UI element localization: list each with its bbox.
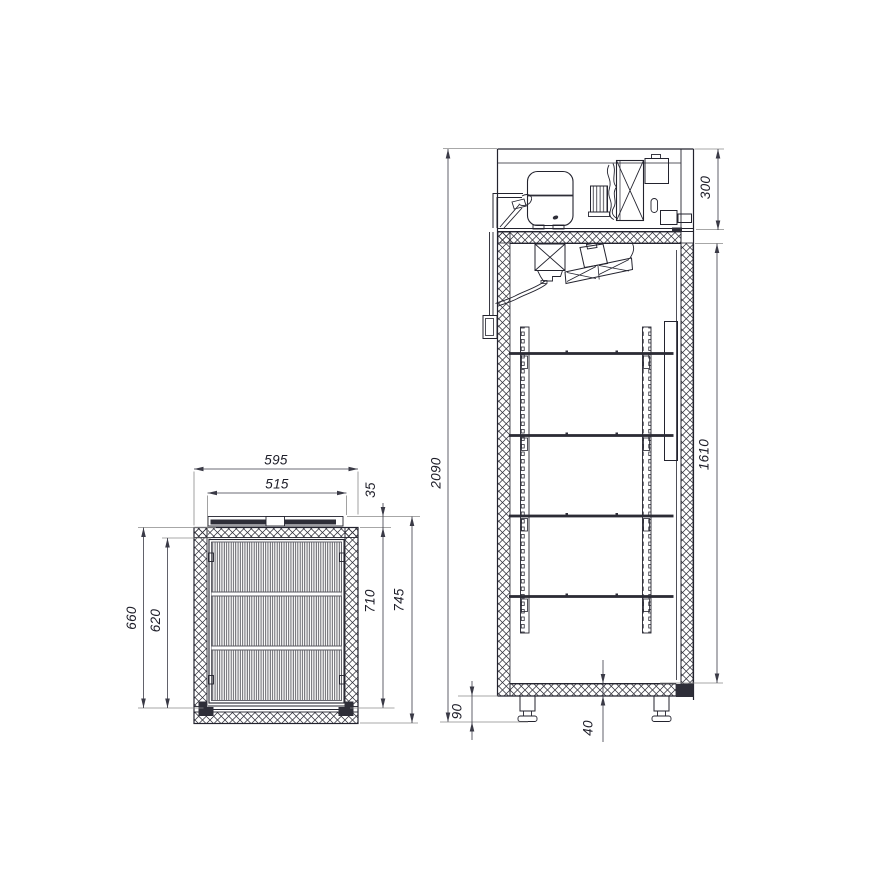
evaporator-unit: [535, 244, 565, 284]
back-wall-insulation: [194, 528, 358, 538]
dim-bottom-insulation: 40: [581, 660, 606, 742]
dim-label-depth-a: 660: [124, 606, 139, 630]
dim-label-outer-width: 595: [264, 453, 288, 468]
dim-label-interior-height: 1610: [697, 439, 712, 470]
rear-leg: [652, 696, 671, 722]
compressor: [528, 172, 574, 230]
interior-grid: [209, 540, 344, 704]
drawing-canvas: 595 515 35 710 745: [0, 0, 878, 878]
condenser-coil: [617, 161, 644, 221]
dim-label-body-depth: 710: [363, 589, 378, 613]
electrical-box: [645, 155, 692, 232]
shelf-rail-right: [643, 327, 652, 633]
dim-overall-depth: 745: [360, 517, 418, 724]
door-liner-bar: [208, 706, 350, 710]
side-wall-insulation-left: [194, 528, 207, 707]
gasket-corner-left: [199, 702, 214, 717]
shelf-rail-left: [521, 327, 530, 633]
dim-overall-height: 2090: [429, 149, 498, 723]
deck-lines: [498, 229, 695, 232]
door-insulation-plan: [194, 712, 358, 724]
dim-label-leg-height: 90: [450, 704, 465, 720]
condenser-fan: [589, 164, 617, 220]
side-wall-insulation-right: [345, 528, 358, 707]
plan-section-view: [194, 517, 358, 724]
door-bottom-rail: [676, 684, 694, 697]
floor-insulation: [510, 684, 676, 696]
side-section-view: [483, 149, 694, 722]
door-liner-panel: [665, 322, 678, 461]
deck-insulation: [498, 232, 681, 243]
dim-label-door-thickness: 35: [363, 482, 378, 498]
dim-label-machine-compartment: 300: [698, 176, 713, 200]
left-wall-insulation: [498, 232, 511, 696]
back-spacer-assembly: [208, 517, 343, 527]
dim-label-overall-height: 2090: [429, 457, 444, 489]
technical-drawing-page: 595 515 35 710 745: [0, 0, 878, 878]
evaporator-fan-shroud: [565, 243, 634, 284]
dim-label-depth-b: 620: [148, 609, 163, 633]
dim-label-inner-width: 515: [265, 477, 289, 492]
dim-label-overall-depth: 745: [392, 588, 407, 612]
door-insulation: [681, 243, 693, 684]
dim-label-bottom-insulation: 40: [581, 720, 596, 736]
front-leg: [518, 696, 537, 722]
gasket-corner-right: [339, 702, 354, 717]
dim-machine-compartment: 300: [695, 149, 725, 230]
drain-tube: [483, 281, 547, 339]
